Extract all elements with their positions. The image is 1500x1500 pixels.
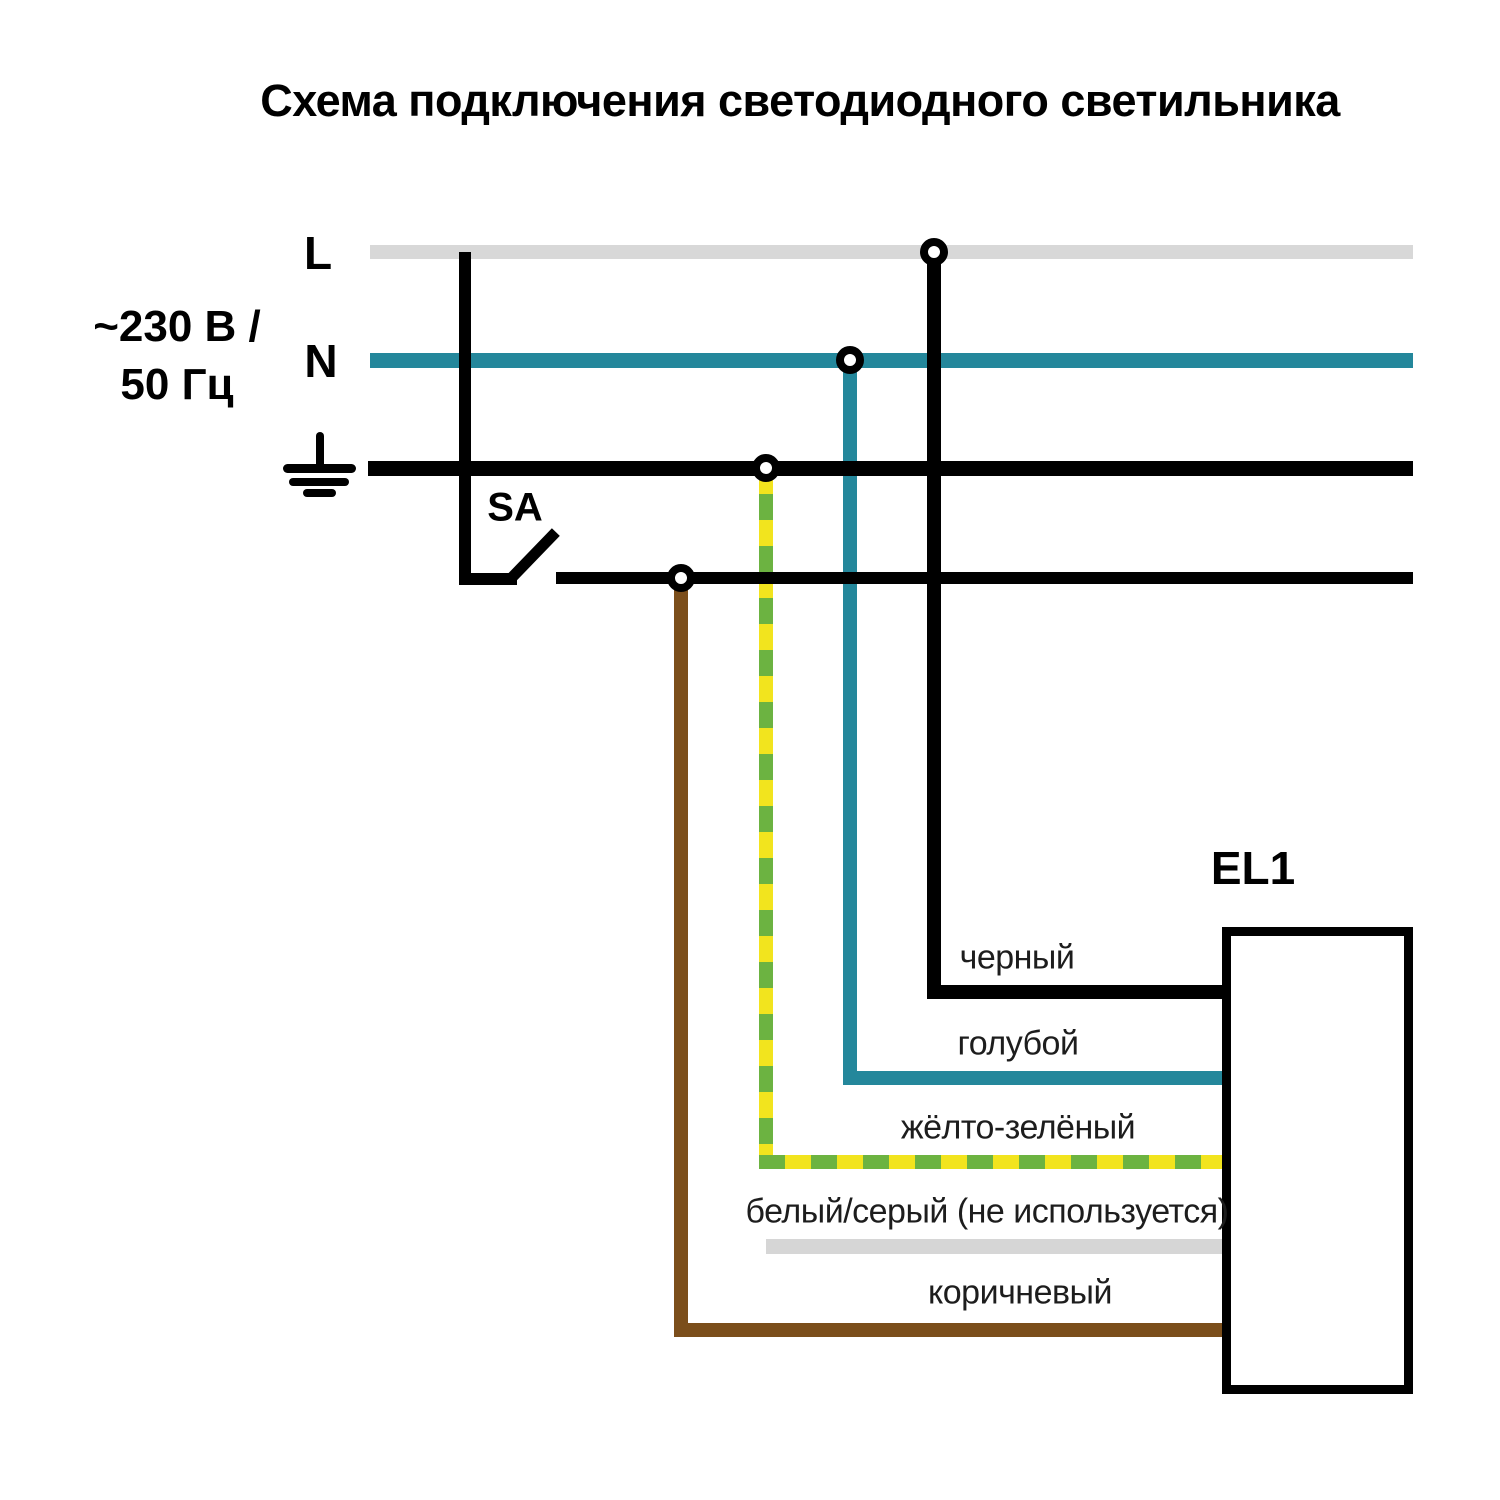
junction-dot-ground: [752, 454, 780, 482]
switch-drop-line: [459, 252, 471, 585]
ground-bus-line: [368, 461, 1413, 476]
junction-dot-neutral: [836, 346, 864, 374]
voltage-label: ~230 В / 50 Гц: [58, 298, 296, 414]
phase-bus-line: [370, 245, 1413, 259]
phase-bus-label: L: [304, 226, 332, 280]
wire-black-vertical: [927, 252, 941, 999]
neutral-bus-line: [370, 353, 1413, 368]
wire-label-blue: голубой: [958, 1025, 1079, 1064]
wire-label-black: черный: [960, 939, 1075, 978]
junction-dot-phase: [920, 238, 948, 266]
wire-label-white-gray: белый/серый (не используется): [746, 1193, 1229, 1232]
wire-yellow-green-horizontal: [759, 1155, 1226, 1169]
wire-gray-horizontal: [766, 1239, 1226, 1254]
voltage-line2: 50 Гц: [58, 356, 296, 414]
ground-bar-medium: [289, 478, 349, 486]
ground-bar-short: [303, 489, 336, 497]
wire-label-brown: коричневый: [928, 1274, 1112, 1313]
wire-brown-vertical: [674, 578, 688, 1337]
wiring-diagram: Схема подключения светодиодного светильн…: [0, 0, 1500, 1500]
voltage-line1: ~230 В /: [58, 298, 296, 356]
wire-blue-horizontal: [843, 1071, 1226, 1085]
neutral-bus-label: N: [304, 334, 337, 388]
ground-stem: [316, 432, 324, 468]
luminaire-label: EL1: [1211, 841, 1295, 895]
wire-brown-horizontal: [674, 1323, 1226, 1337]
page-title: Схема подключения светодиодного светильн…: [250, 76, 1350, 126]
switch-blade-icon: [506, 528, 560, 583]
switch-label: SA: [487, 486, 543, 531]
ground-bar-long: [283, 464, 356, 473]
luminaire-box: [1222, 927, 1413, 1394]
wire-black-horizontal: [927, 985, 1226, 999]
wire-label-yellow-green: жёлто-зелёный: [901, 1109, 1135, 1148]
junction-dot-switched: [667, 564, 695, 592]
